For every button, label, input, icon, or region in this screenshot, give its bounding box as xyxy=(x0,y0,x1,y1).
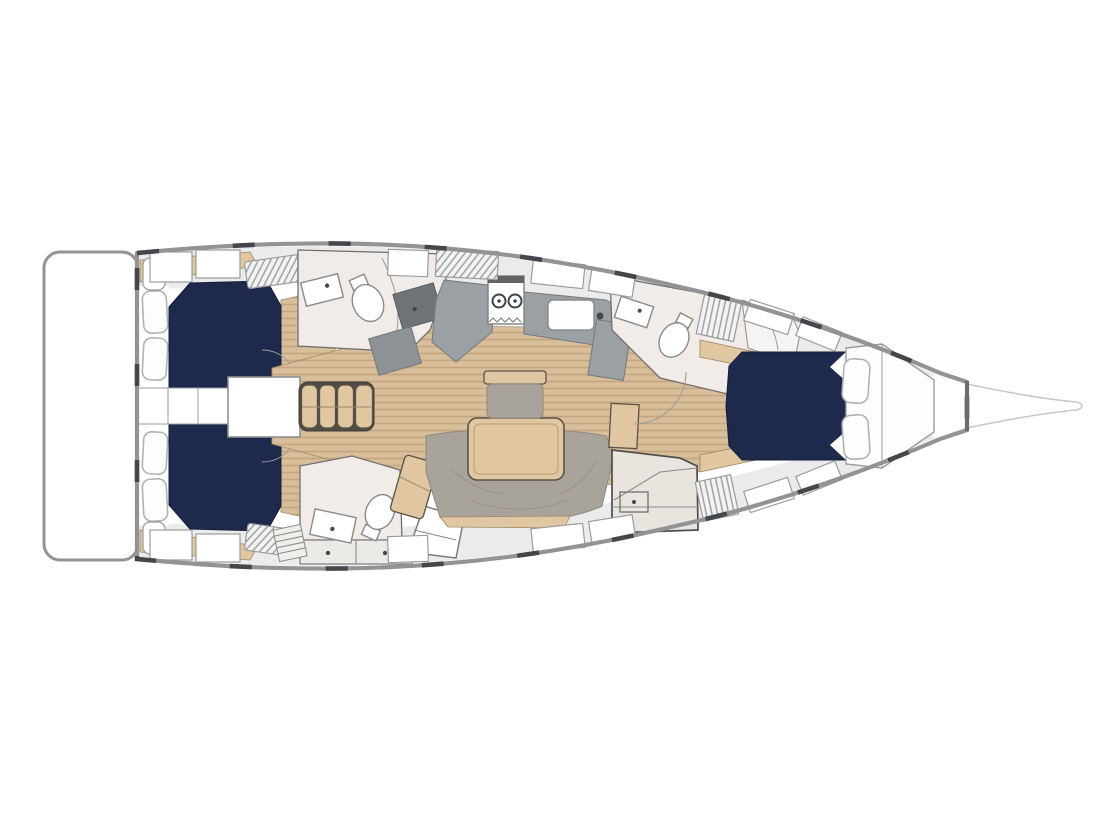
pillow xyxy=(142,290,168,333)
drawer-knob xyxy=(326,551,330,555)
step-ladder xyxy=(273,524,307,561)
side-cabinet xyxy=(609,403,639,448)
deck-locker xyxy=(388,535,429,562)
passage-floor xyxy=(137,388,228,424)
bowsprit xyxy=(967,384,1082,428)
boat-floor-plan-page xyxy=(0,0,1119,839)
pillow xyxy=(142,431,168,474)
companionway-stairs xyxy=(299,382,374,431)
pillow xyxy=(841,414,870,460)
bench-backrest xyxy=(484,371,546,384)
swim-platform xyxy=(44,252,138,560)
deck-locker xyxy=(150,530,192,560)
faucet xyxy=(597,313,604,320)
pillow xyxy=(841,358,870,404)
double-berth-port xyxy=(169,281,281,388)
deck-locker xyxy=(150,252,192,282)
galley-sink xyxy=(548,300,594,330)
boat-floor-plan xyxy=(0,0,1119,839)
pillow xyxy=(142,478,168,521)
deck-locker xyxy=(196,250,240,278)
bench-cushion xyxy=(487,384,543,418)
deck-locker xyxy=(388,249,429,276)
drawer-knob xyxy=(383,551,387,555)
salon-table xyxy=(468,418,564,480)
seat-mark xyxy=(632,500,636,504)
pillow xyxy=(142,337,168,380)
companionway-landing xyxy=(228,377,300,437)
deck-locker xyxy=(196,534,240,562)
double-berth-starboard xyxy=(169,424,281,531)
stove xyxy=(488,276,524,324)
v-berth xyxy=(726,352,846,460)
forward-cabin xyxy=(700,340,934,472)
fore-bench xyxy=(484,371,546,418)
